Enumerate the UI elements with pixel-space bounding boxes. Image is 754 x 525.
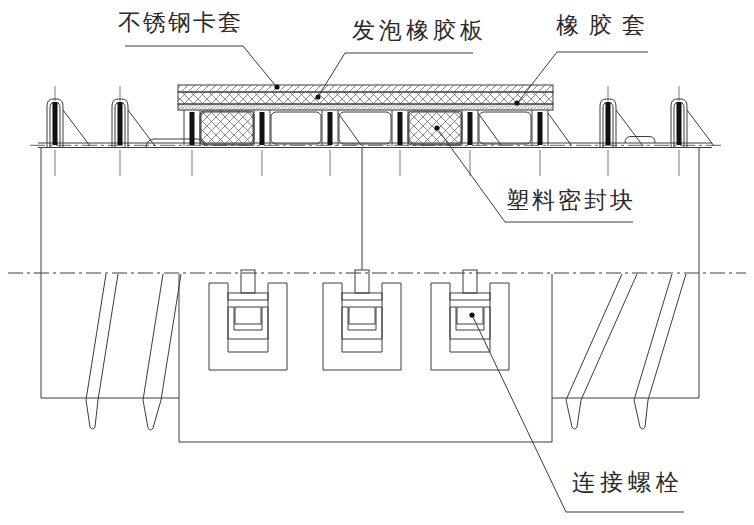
- cell-liner: [271, 112, 321, 144]
- bolt-bar: [468, 112, 473, 145]
- rubber-sleeve-layer: [178, 104, 553, 110]
- cell-liner: [479, 112, 531, 144]
- label-plastic-sealing-block: 塑料密封块: [506, 187, 636, 215]
- washer-plate: [450, 293, 490, 300]
- connecting-bolt-assembly: [431, 270, 509, 370]
- far-side-rib: [566, 274, 637, 429]
- joint-wrap-band: [178, 85, 553, 110]
- bolt-bar: [606, 102, 611, 145]
- label-rubber-sleeve: 橡胶套: [556, 12, 655, 40]
- washer-plate: [228, 293, 268, 300]
- pipe-joint-section-drawing: [0, 0, 754, 525]
- label-connecting-bolt: 连接螺栓: [572, 469, 684, 497]
- rib: [600, 86, 643, 176]
- rib: [47, 86, 90, 176]
- outer-bracket: [431, 283, 509, 370]
- bolt-bar: [118, 102, 123, 145]
- connecting-bolt-assembly: [209, 270, 287, 370]
- far-side-rib: [143, 274, 181, 430]
- pipe-crest-line: [30, 137, 722, 148]
- label-stainless-steel-clamp-sleeve: 不锈钢卡套: [118, 9, 243, 37]
- steel-clamp-layer: [178, 85, 553, 92]
- bolt-bar: [190, 112, 195, 145]
- foam-rubber-layer: [178, 92, 553, 104]
- label-foamed-rubber-plate: 发泡橡胶板: [352, 17, 487, 45]
- cell-liner: [339, 112, 391, 144]
- far-side-rib: [86, 274, 118, 429]
- inner-bracket: [228, 307, 268, 339]
- outer-bracket: [323, 283, 401, 370]
- nut: [349, 307, 375, 324]
- inner-bracket: [450, 307, 490, 339]
- connecting-bolt-assemblies: [209, 270, 509, 370]
- bolt-bar: [398, 112, 403, 145]
- nut: [235, 307, 261, 324]
- far-side-rib: [634, 274, 686, 429]
- washer-plate: [342, 293, 382, 300]
- coupling-sleeve-outline: [179, 274, 552, 442]
- inner-bracket: [342, 307, 382, 339]
- rib: [112, 86, 155, 176]
- bolt-bar: [260, 112, 265, 145]
- diagram-canvas: 不锈钢卡套 发泡橡胶板 橡胶套 塑料密封块 连接螺栓: [0, 0, 754, 525]
- leader-steel-clamp: [125, 46, 275, 85]
- bolt-bar: [53, 102, 58, 145]
- bolt-bar: [328, 112, 333, 145]
- bolt-bar: [677, 102, 682, 145]
- far-side-ribs: [86, 274, 686, 430]
- plastic-sealing-block: [200, 111, 254, 145]
- outer-bracket: [209, 283, 287, 370]
- connecting-bolt-assembly: [323, 270, 401, 370]
- bolt-bar: [538, 112, 543, 145]
- rib: [671, 86, 714, 176]
